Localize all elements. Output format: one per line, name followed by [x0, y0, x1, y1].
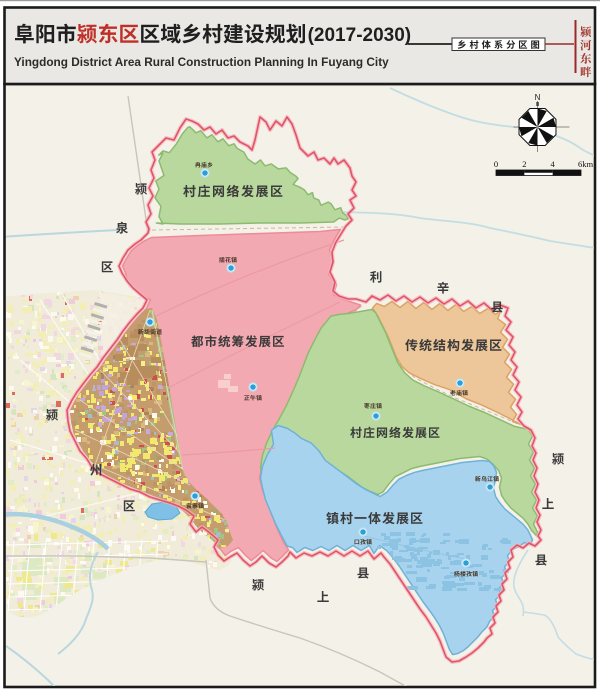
svg-text:6km: 6km [578, 159, 594, 169]
svg-text:4: 4 [551, 159, 556, 169]
svg-text:Yingdong District Area Rural C: Yingdong District Area Rural Constructio… [14, 55, 389, 69]
svg-text:(2017-2030): (2017-2030) [308, 25, 412, 46]
svg-text:2: 2 [522, 159, 526, 169]
svg-text:0: 0 [494, 159, 498, 169]
svg-text:N: N [535, 93, 541, 102]
